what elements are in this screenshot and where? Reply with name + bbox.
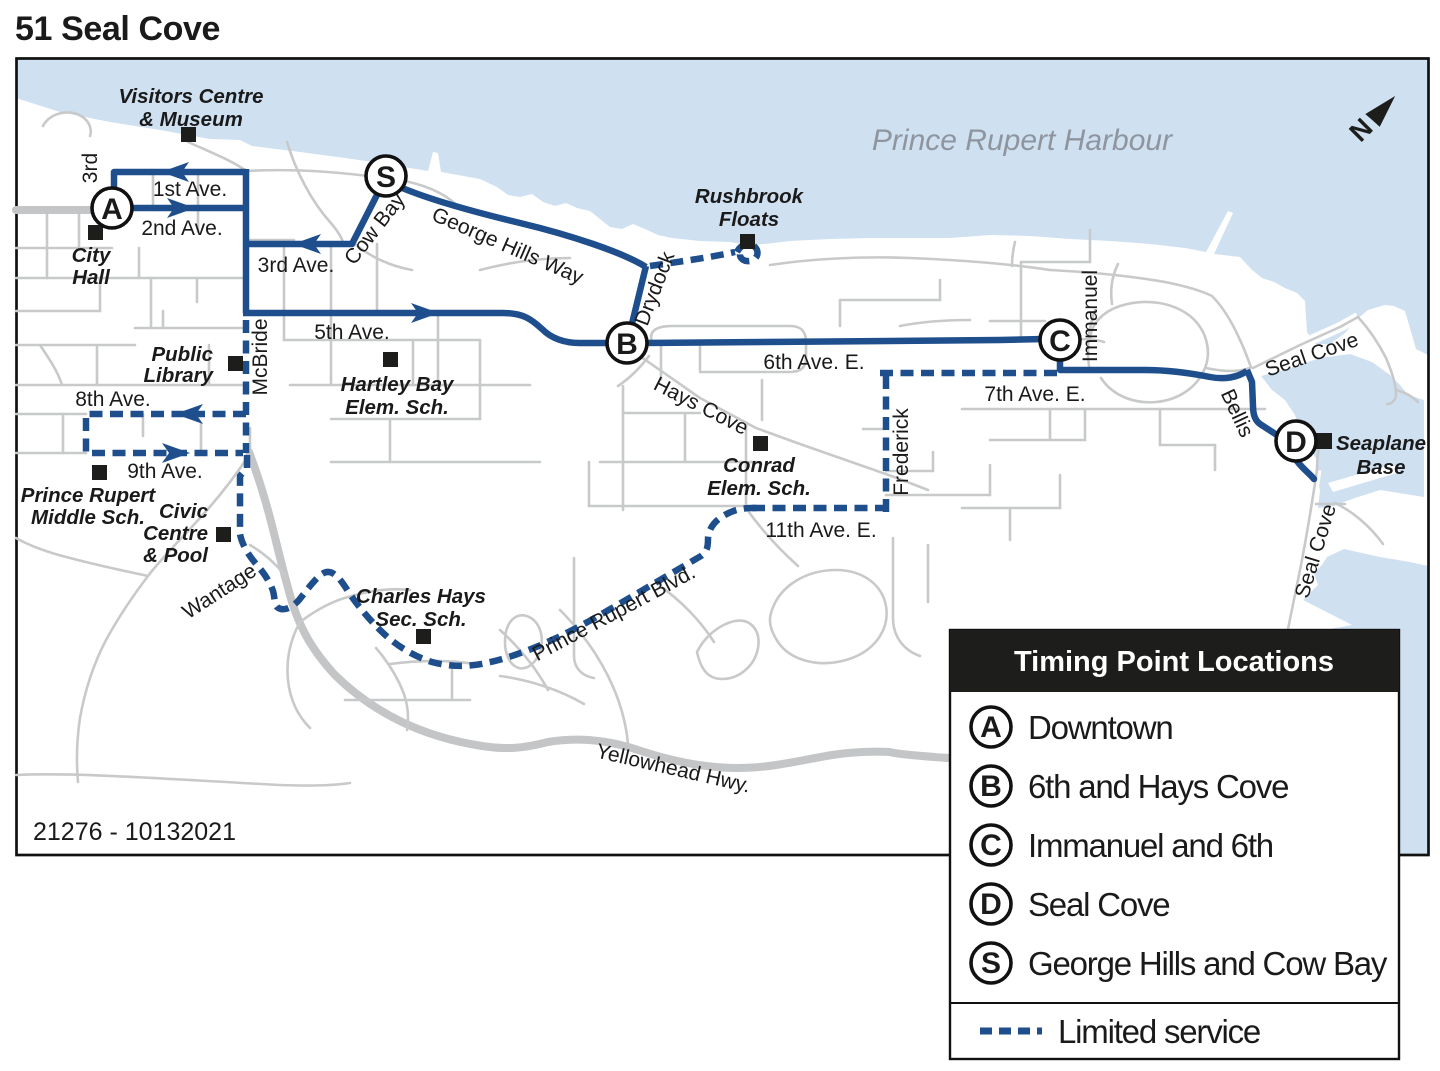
svg-text:Library: Library <box>144 364 215 387</box>
svg-text:D: D <box>1285 426 1307 459</box>
svg-text:Middle Sch.: Middle Sch. <box>31 506 145 529</box>
svg-text:& Museum: & Museum <box>139 108 243 131</box>
svg-text:Hartley Bay: Hartley Bay <box>341 373 455 396</box>
svg-text:Prince Rupert: Prince Rupert <box>21 484 157 507</box>
svg-text:Floats: Floats <box>719 208 779 231</box>
svg-text:Seaplane: Seaplane <box>1336 432 1426 455</box>
svg-text:21276 - 10132021: 21276 - 10132021 <box>33 818 236 846</box>
svg-text:6th Ave. E.: 6th Ave. E. <box>763 351 864 374</box>
svg-text:George Hills and Cow Bay: George Hills and Cow Bay <box>1028 945 1388 982</box>
svg-text:A: A <box>980 711 1002 744</box>
svg-text:Visitors Centre: Visitors Centre <box>118 85 263 108</box>
svg-text:8th Ave.: 8th Ave. <box>75 388 151 411</box>
svg-text:Centre: Centre <box>143 522 208 545</box>
svg-text:3rd Ave.: 3rd Ave. <box>258 254 335 277</box>
svg-text:D: D <box>980 888 1002 921</box>
svg-text:Limited service: Limited service <box>1058 1013 1260 1050</box>
svg-text:Wantage: Wantage <box>178 559 260 624</box>
svg-text:1st Ave.: 1st Ave. <box>153 178 227 201</box>
svg-text:Charles Hays: Charles Hays <box>356 585 486 608</box>
svg-text:11th Ave. E.: 11th Ave. E. <box>765 519 876 542</box>
svg-text:Immanuel: Immanuel <box>1079 270 1102 362</box>
svg-text:Base: Base <box>1356 456 1405 479</box>
svg-text:& Pool: & Pool <box>143 544 209 567</box>
svg-text:Civic: Civic <box>159 500 209 523</box>
svg-text:B: B <box>616 328 638 361</box>
svg-text:3rd: 3rd <box>79 153 102 183</box>
svg-text:C: C <box>980 829 1002 862</box>
svg-text:Elem. Sch.: Elem. Sch. <box>707 477 811 500</box>
svg-text:Public: Public <box>151 343 213 366</box>
svg-text:S: S <box>981 947 1001 980</box>
svg-text:Elem. Sch.: Elem. Sch. <box>345 396 449 419</box>
svg-text:7th Ave. E.: 7th Ave. E. <box>984 383 1085 406</box>
svg-text:Prince Rupert Blvd.: Prince Rupert Blvd. <box>529 561 700 666</box>
svg-text:City: City <box>72 244 112 267</box>
svg-text:9th Ave.: 9th Ave. <box>127 460 203 483</box>
svg-text:George Hills Way: George Hills Way <box>428 203 587 289</box>
svg-text:Frederick: Frederick <box>890 408 913 496</box>
svg-text:Hall: Hall <box>72 266 111 289</box>
svg-text:Immanuel and 6th: Immanuel and 6th <box>1028 827 1273 864</box>
svg-text:S: S <box>376 161 396 194</box>
svg-text:Timing Point Locations: Timing Point Locations <box>1014 646 1334 678</box>
svg-text:Downtown: Downtown <box>1028 709 1172 746</box>
svg-text:C: C <box>1049 325 1071 358</box>
svg-text:B: B <box>980 770 1002 803</box>
svg-text:Rushbrook: Rushbrook <box>695 185 805 208</box>
svg-text:Seal Cove: Seal Cove <box>1028 886 1169 923</box>
svg-text:A: A <box>101 193 123 226</box>
svg-text:2nd Ave.: 2nd Ave. <box>141 217 222 240</box>
svg-text:McBride: McBride <box>249 318 272 395</box>
svg-text:Sec. Sch.: Sec. Sch. <box>375 608 466 631</box>
svg-text:Prince Rupert Harbour: Prince Rupert Harbour <box>872 124 1173 157</box>
svg-text:Conrad: Conrad <box>723 454 795 477</box>
svg-text:Hays Cove: Hays Cove <box>650 373 752 440</box>
svg-text:5th Ave.: 5th Ave. <box>314 321 390 344</box>
svg-text:6th and Hays Cove: 6th and Hays Cove <box>1028 768 1288 805</box>
